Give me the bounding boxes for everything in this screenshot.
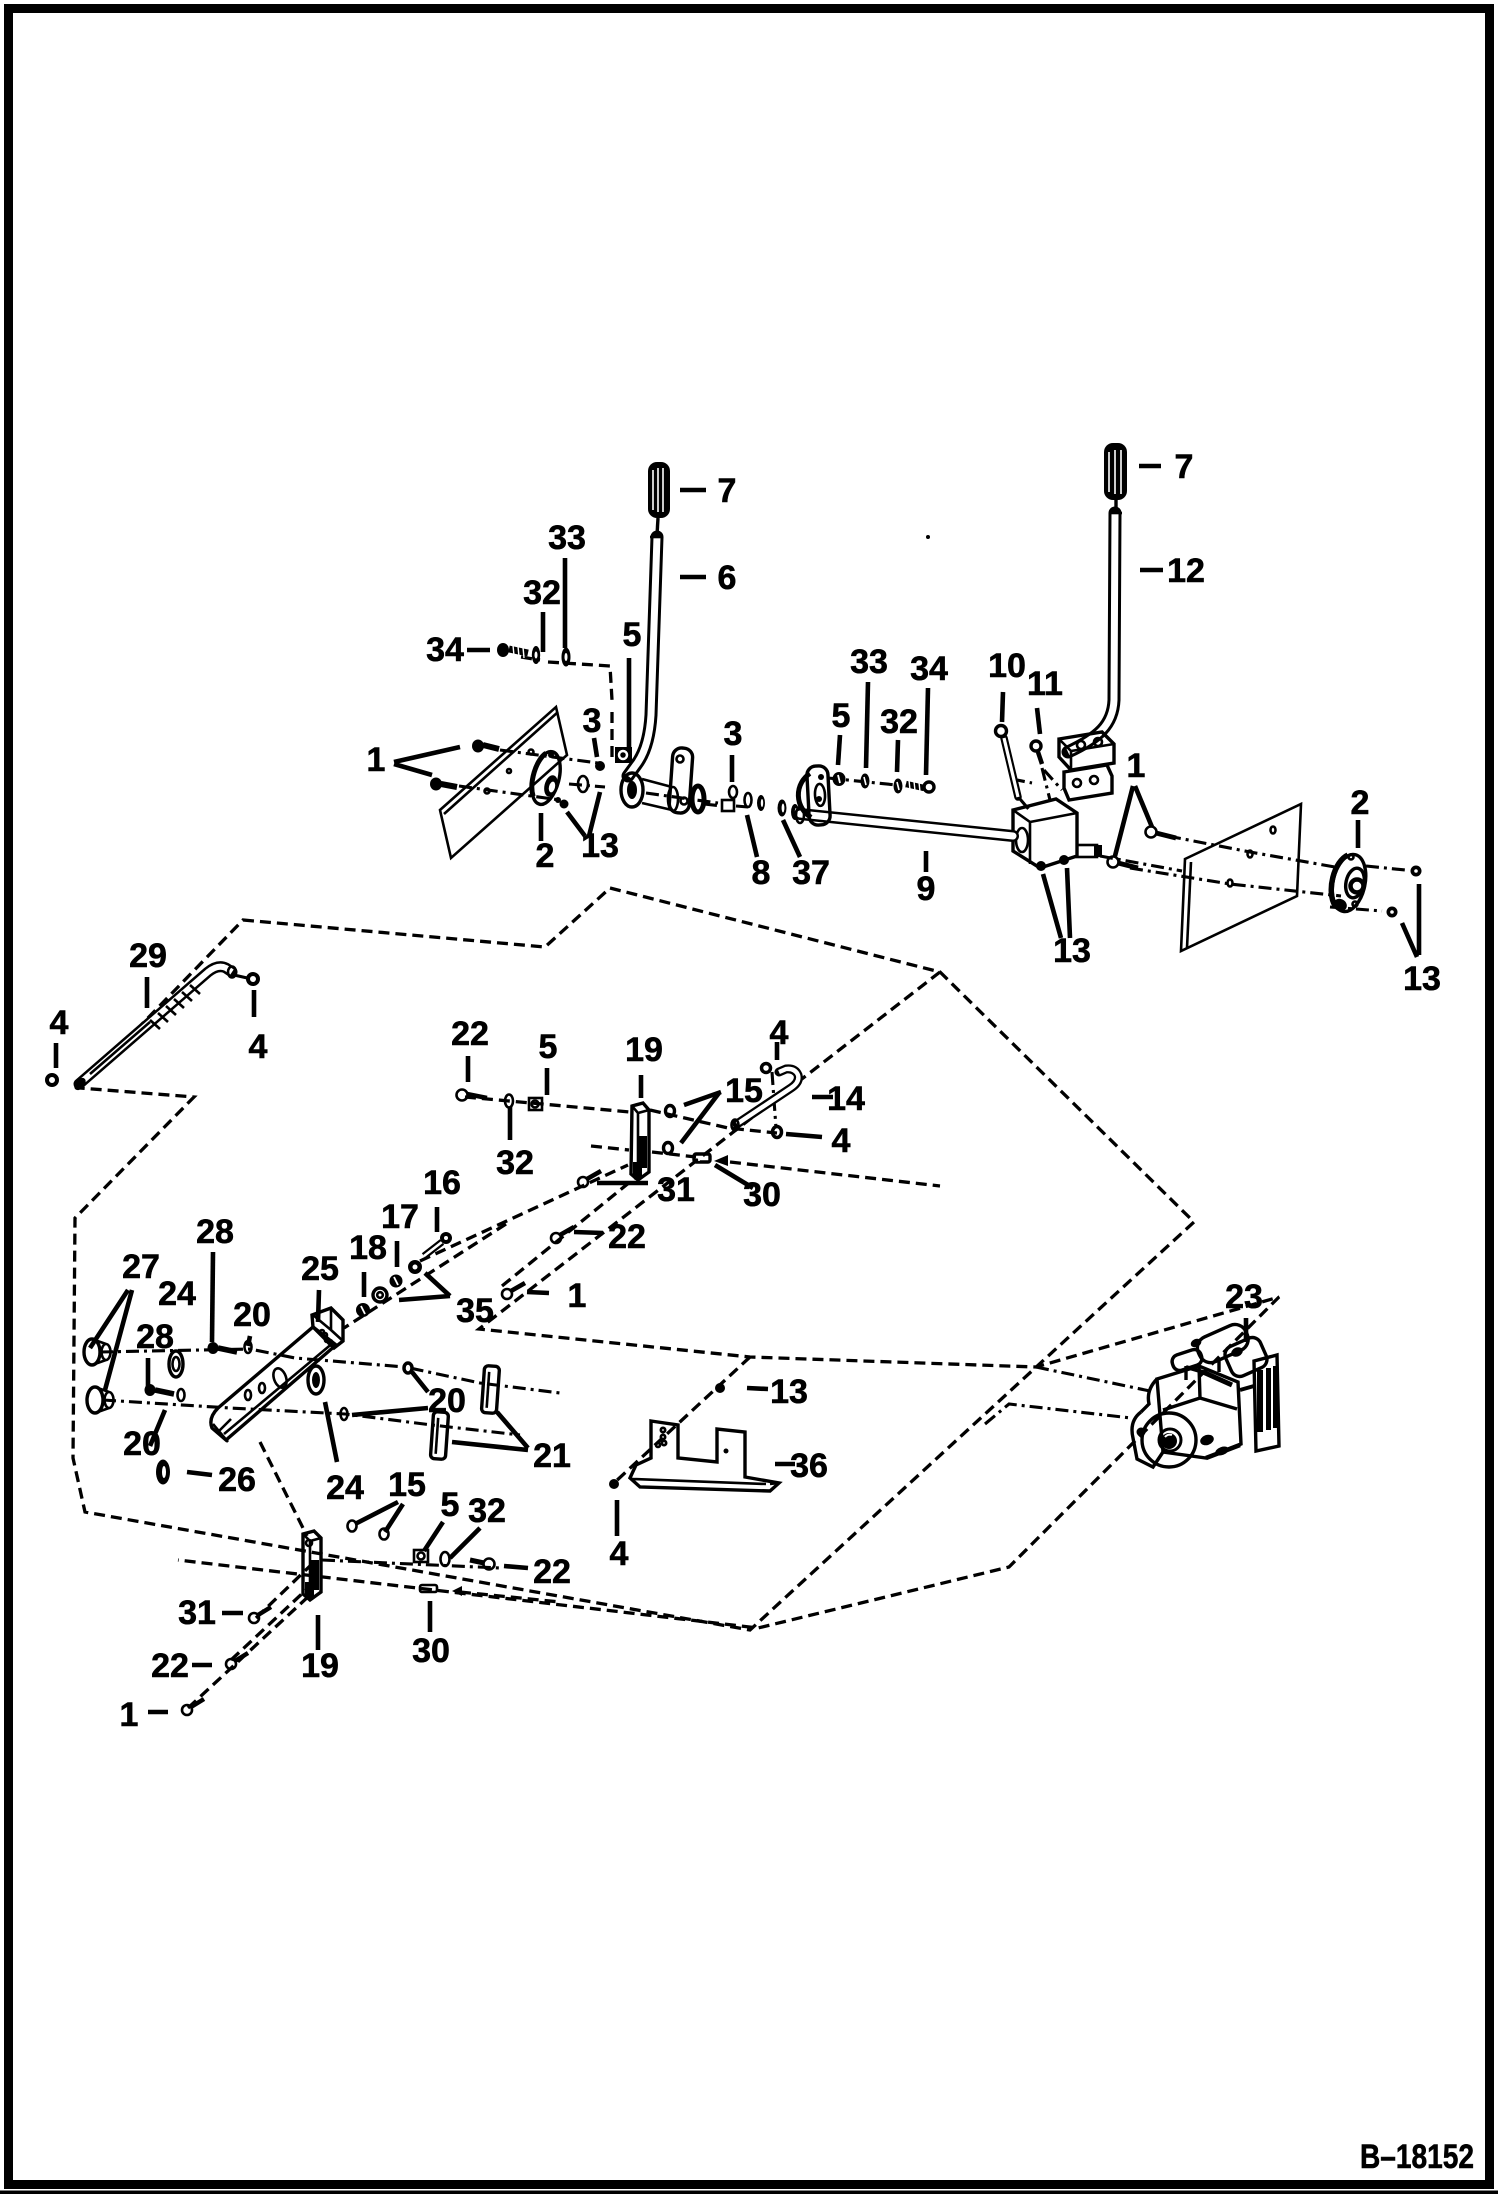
svg-text:3: 3 (724, 715, 743, 753)
svg-text:32: 32 (880, 703, 918, 741)
svg-text:19: 19 (625, 1031, 663, 1069)
svg-text:32: 32 (523, 574, 561, 612)
svg-text:3: 3 (583, 702, 602, 740)
svg-text:24: 24 (326, 1469, 364, 1507)
svg-text:9: 9 (917, 870, 936, 908)
svg-text:6: 6 (718, 559, 737, 597)
svg-text:22: 22 (451, 1015, 489, 1053)
svg-text:1: 1 (120, 1696, 139, 1734)
svg-text:31: 31 (657, 1171, 695, 1209)
svg-text:28: 28 (196, 1213, 234, 1251)
svg-text:22: 22 (608, 1218, 646, 1256)
svg-text:4: 4 (50, 1004, 69, 1042)
svg-text:27: 27 (122, 1248, 160, 1286)
svg-text:34: 34 (426, 631, 464, 669)
svg-text:23: 23 (1225, 1278, 1263, 1316)
svg-text:30: 30 (412, 1632, 450, 1670)
svg-text:4: 4 (610, 1535, 629, 1573)
svg-text:13: 13 (1403, 960, 1441, 998)
svg-text:10: 10 (988, 647, 1026, 685)
svg-text:22: 22 (533, 1553, 571, 1591)
svg-text:1: 1 (367, 741, 386, 779)
svg-text:7: 7 (1175, 448, 1194, 486)
svg-text:13: 13 (581, 827, 619, 865)
svg-text:4: 4 (249, 1028, 268, 1066)
svg-text:20: 20 (233, 1296, 271, 1334)
svg-text:2: 2 (1351, 784, 1370, 822)
svg-text:26: 26 (218, 1461, 256, 1499)
svg-text:32: 32 (468, 1492, 506, 1530)
svg-text:33: 33 (548, 519, 586, 557)
svg-text:34: 34 (910, 650, 948, 688)
svg-text:11: 11 (1027, 665, 1063, 703)
svg-text:29: 29 (129, 937, 167, 975)
svg-text:30: 30 (743, 1176, 781, 1214)
svg-text:4: 4 (832, 1122, 851, 1160)
svg-text:5: 5 (623, 616, 642, 654)
svg-text:5: 5 (832, 697, 851, 735)
svg-text:22: 22 (151, 1647, 189, 1685)
svg-text:5: 5 (539, 1028, 558, 1066)
svg-text:33: 33 (850, 643, 888, 681)
svg-text:19: 19 (301, 1647, 339, 1685)
svg-text:25: 25 (301, 1250, 339, 1288)
svg-text:7: 7 (718, 472, 737, 510)
svg-text:15: 15 (388, 1466, 426, 1504)
svg-text:21: 21 (533, 1437, 571, 1475)
svg-text:2: 2 (536, 837, 555, 875)
svg-text:37: 37 (792, 854, 830, 892)
svg-text:32: 32 (496, 1144, 534, 1182)
svg-text:31: 31 (178, 1594, 216, 1632)
svg-text:1: 1 (1127, 747, 1146, 785)
svg-text:24: 24 (158, 1275, 196, 1313)
svg-text:B–18152: B–18152 (1360, 2138, 1474, 2176)
svg-text:15: 15 (725, 1072, 763, 1110)
svg-text:13: 13 (770, 1373, 808, 1411)
svg-text:8: 8 (752, 854, 771, 892)
svg-text:36: 36 (790, 1447, 828, 1485)
svg-text:35: 35 (456, 1292, 494, 1330)
svg-text:1: 1 (568, 1277, 587, 1315)
svg-text:12: 12 (1167, 552, 1205, 590)
svg-text:18: 18 (349, 1229, 387, 1267)
svg-text:5: 5 (441, 1486, 460, 1524)
svg-text:16: 16 (423, 1164, 461, 1202)
